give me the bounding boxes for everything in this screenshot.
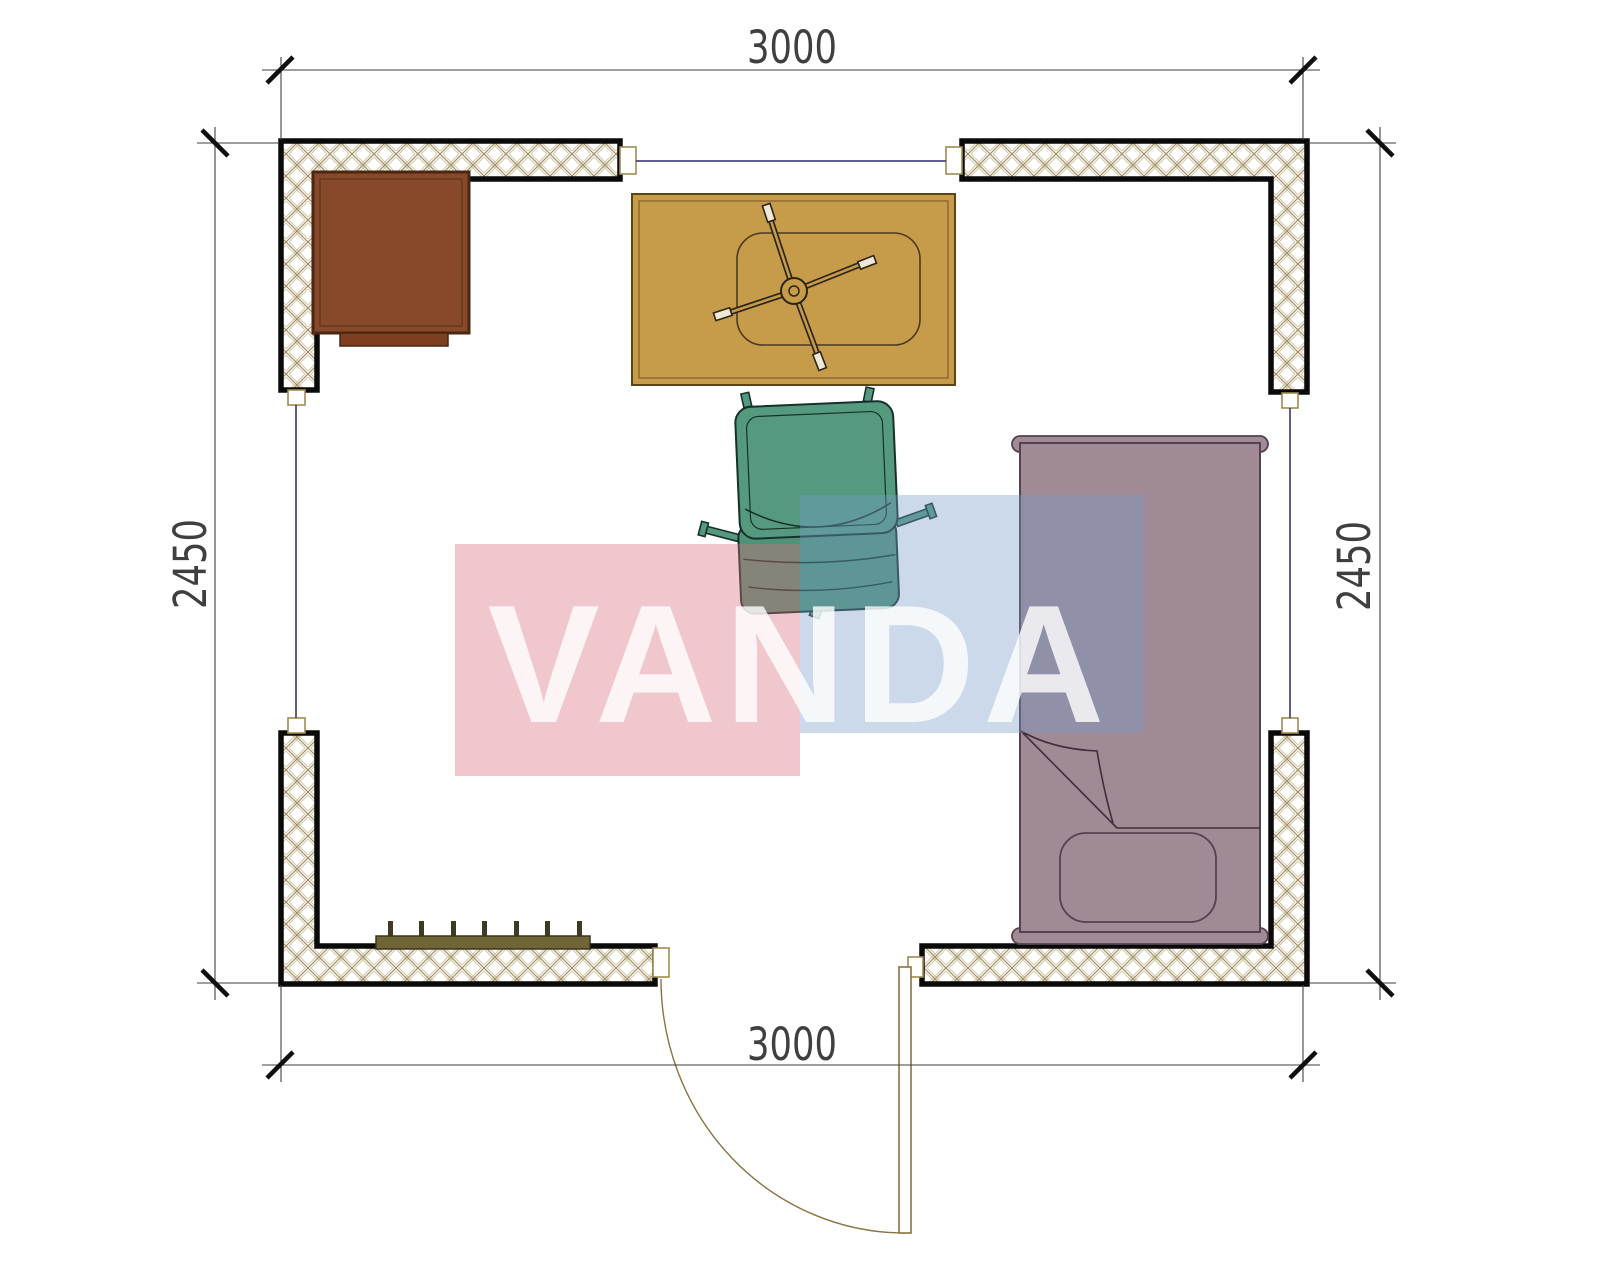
dim-label-left: 2450	[164, 519, 217, 609]
window-jamb	[288, 718, 305, 733]
dim-label-bottom: 3000	[747, 1018, 837, 1071]
chair-armrest	[698, 521, 740, 545]
desk	[632, 194, 955, 385]
radiator-tick	[451, 921, 456, 937]
radiator-body	[376, 936, 590, 949]
radiator-tick	[545, 921, 550, 937]
cabinet	[313, 172, 469, 346]
cabinet-base	[340, 333, 448, 346]
wall-top-right	[962, 141, 1307, 392]
door-leaf	[899, 967, 911, 1233]
window-jamb	[1282, 718, 1298, 733]
door	[661, 967, 911, 1233]
floor-plan-drawing: 3000 3000 2450 2450 VANDA	[0, 0, 1600, 1280]
radiator-tick	[419, 921, 424, 937]
window-jamb	[620, 147, 636, 174]
bed-pillow	[1060, 833, 1216, 922]
radiator-tick	[388, 921, 393, 937]
radiator-tick	[577, 921, 582, 937]
dim-label-right: 2450	[1328, 521, 1381, 611]
radiator-tick	[514, 921, 519, 937]
door-jamb	[653, 948, 669, 977]
dim-label-top: 3000	[747, 21, 837, 74]
watermark-text: VANDA	[488, 570, 1113, 758]
cabinet-body	[313, 172, 469, 333]
window-jamb	[946, 147, 962, 174]
radiator-tick	[482, 921, 487, 937]
window-jamb	[288, 390, 305, 405]
floor-plan-canvas: 3000 3000 2450 2450 VANDA	[0, 0, 1600, 1280]
radiator	[376, 921, 590, 949]
chair-caster-icon	[863, 387, 874, 402]
window-jamb	[1282, 393, 1298, 408]
chair-caster-icon	[741, 392, 752, 407]
